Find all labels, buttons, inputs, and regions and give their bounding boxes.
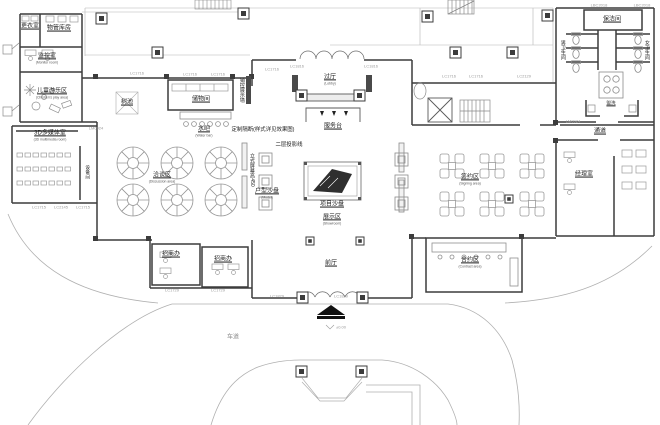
hall-column xyxy=(306,237,314,245)
trellis-icon xyxy=(195,0,231,9)
label-signing-area: 签约区(Signing area) xyxy=(458,174,482,185)
room-name-en: (Children's play area) xyxy=(36,95,68,99)
hall-column xyxy=(354,90,365,101)
project-sand-table xyxy=(304,162,361,200)
floor-plan-linework xyxy=(0,0,660,425)
label-front-hall: 前厅 xyxy=(325,261,337,268)
toilet-fixtures xyxy=(572,33,643,73)
room-name: 通道 xyxy=(594,129,606,136)
room-name: 车道 xyxy=(227,335,239,342)
entrance-column xyxy=(357,292,368,303)
manager-desk xyxy=(564,184,575,195)
label-changing-room: 更衣室 xyxy=(21,24,39,31)
window-tag: LC1829 xyxy=(334,294,348,299)
window-tag: LC2145 xyxy=(54,205,68,210)
window-tag: LBC2018 xyxy=(634,3,651,8)
label-custom-partition: 定制隔断(样式详见效果图) xyxy=(232,127,295,133)
label-invest-office-2: 招商办 xyxy=(214,257,232,264)
room-name-en: (3D multimedia room) xyxy=(34,137,67,141)
discussion-tables xyxy=(117,147,237,216)
room-name: 洽谈区 xyxy=(147,172,177,179)
stair-top-icon xyxy=(448,0,474,14)
label-discussion-area: 洽谈区(Discussion area) xyxy=(147,172,177,183)
annotation-text: 二层投影线 xyxy=(276,142,303,148)
room-name: 监控室 xyxy=(35,53,60,60)
label-projection-line: 二层投影线 xyxy=(276,142,303,148)
label-media-room: 3D多媒体室(3D multimedia room) xyxy=(32,130,69,141)
annotation-text: 立式屏幕高450 xyxy=(248,153,254,186)
room-name: 儿童游乐区 xyxy=(34,88,70,95)
window-tag: LC1716 xyxy=(469,74,483,79)
room-name-en: (Signing area) xyxy=(459,181,480,185)
label-manager-room: 经理室 xyxy=(575,172,593,179)
media-room-seats xyxy=(17,153,71,185)
terrace-lines xyxy=(82,8,553,82)
room-name: 男卫生间 xyxy=(559,40,565,60)
room-name-en: (Discussion area) xyxy=(149,179,176,183)
office-desk xyxy=(160,268,171,279)
hall-column xyxy=(356,237,364,245)
window-tag: LM0924 xyxy=(566,119,580,124)
label-project-model: 项目沙盘 xyxy=(320,202,344,209)
label-passage: 通道 xyxy=(594,129,606,136)
sales-display-wall xyxy=(246,76,251,104)
label-mens-toilet: 男卫生间 xyxy=(559,40,565,60)
walls xyxy=(12,8,654,298)
entrance-doors-top xyxy=(300,51,364,59)
room-name: 更衣室 xyxy=(21,24,39,31)
wing-column xyxy=(505,195,513,203)
annotation-text: 定制隔断(样式详见效果图) xyxy=(232,127,295,133)
room-name-en: (Contract area) xyxy=(459,264,482,268)
window-tag: LC1716 xyxy=(130,71,144,76)
room-name: 服务台 xyxy=(324,124,342,131)
driveway-curves xyxy=(8,214,652,425)
window-tag: LC1816 xyxy=(290,64,304,69)
label-washing: 盥洗 xyxy=(606,100,615,105)
entrance-column xyxy=(297,292,308,303)
label-display-area: 展示区(Showroom) xyxy=(322,214,343,225)
label-storage-room: 储物间 xyxy=(192,97,210,104)
window-tag: LM0924 xyxy=(89,126,103,131)
label-womens-toilet: 女卫生间 xyxy=(643,40,649,60)
room-name: 户型沙盘 xyxy=(255,188,279,195)
annotation-text: 销控展示墙 xyxy=(238,78,244,103)
entrance-doors-bottom xyxy=(300,292,360,297)
porch-canopy xyxy=(302,378,362,401)
window-tag: LC1816 xyxy=(364,64,378,69)
room-name: 3D多媒体室 xyxy=(32,130,69,137)
office-desk xyxy=(212,264,223,275)
room-name-en: (Monitor room) xyxy=(36,60,58,64)
label-monitor-room: 监控室(Monitor room) xyxy=(35,53,60,64)
entrance-arrow-icon xyxy=(317,305,345,319)
room-name-en: (Showroom) xyxy=(323,221,342,225)
room-name: 招商办 xyxy=(162,252,180,259)
level-mark-icon xyxy=(326,325,334,329)
feature-wall xyxy=(366,75,372,92)
elevator-icon xyxy=(428,98,452,122)
terrace-columns xyxy=(96,8,553,58)
restroom-entry-mats xyxy=(588,105,636,112)
signing-clusters xyxy=(440,154,544,216)
room-name: 展示区 xyxy=(322,214,343,221)
window-tag: LC1829 xyxy=(270,294,284,299)
room-name: 储物间 xyxy=(192,97,210,104)
office-desk xyxy=(228,264,239,275)
room-name: 保洁间 xyxy=(603,17,621,24)
manager-desk xyxy=(564,152,575,163)
label-sales-wall: 销控展示墙 xyxy=(238,78,244,103)
room-name: 招商办 xyxy=(214,257,232,264)
window-tag: LC1716 xyxy=(183,72,197,77)
room-name: 水吧 xyxy=(194,126,213,133)
room-name: 树池 xyxy=(121,100,133,107)
label-service-desk: 服务台 xyxy=(324,124,342,131)
annex-furniture xyxy=(22,16,78,22)
room-name: 盥洗 xyxy=(606,100,615,105)
room-name: 过厅 xyxy=(324,74,337,81)
room-name-en: (Model) xyxy=(256,195,278,199)
label-contract-area: 合约区(Contract area) xyxy=(457,257,483,268)
label-cleaning-room: 保洁间 xyxy=(603,17,621,24)
window-tag: LC1716 xyxy=(442,74,456,79)
stairs-icon xyxy=(460,100,490,122)
hall-column xyxy=(296,90,307,101)
label-kids-area: 儿童游乐区(Children's play area) xyxy=(34,88,70,99)
wash-basin-counter xyxy=(599,72,623,98)
manager-cabinets xyxy=(622,150,646,189)
section-markers xyxy=(3,43,19,116)
label-invest-office-1: 招商办 xyxy=(162,252,180,259)
room-name: 设备间 xyxy=(85,165,90,179)
window-tag: LC1729 xyxy=(211,288,225,293)
room-name: 合约区 xyxy=(457,257,483,264)
window-tag: LC1716 xyxy=(265,67,279,72)
room-name: 物管库房 xyxy=(47,26,71,33)
porch-column xyxy=(356,366,367,377)
room-name-en: (Water bar) xyxy=(195,133,212,137)
window-tag: LC1715 xyxy=(32,205,46,210)
label-property-storage: 物管库房 xyxy=(47,26,71,33)
window-tag: LC1716 xyxy=(211,72,225,77)
water-bar-counter xyxy=(180,112,231,126)
floor-plan-drawing: 更衣室 物管库房 监控室(Monitor room) 儿童游乐区(Childre… xyxy=(0,0,660,425)
window-tag: LC1729 xyxy=(165,288,179,293)
room-name-en: (Lobby) xyxy=(324,81,336,85)
label-equipment-room: 设备间 xyxy=(85,165,90,179)
window-tag: LC1715 xyxy=(76,205,90,210)
storage-shelves xyxy=(172,84,228,91)
label-vertical-screen: 立式屏幕高450 xyxy=(248,153,254,186)
label-lobby: 过厅(Lobby) xyxy=(324,74,337,85)
label-unit-model: 户型沙盘(Model) xyxy=(255,188,279,199)
room-name: 签约区 xyxy=(458,174,482,181)
label-water-bar: 水吧(Water bar) xyxy=(194,126,213,137)
room-name: 经理室 xyxy=(575,172,593,179)
label-driveway: 车道 xyxy=(227,335,239,342)
room-name: 项目沙盘 xyxy=(320,202,344,209)
window-tag: LBC2018 xyxy=(591,3,608,8)
room-name: 女卫生间 xyxy=(643,40,649,60)
room-name: 前厅 xyxy=(325,261,337,268)
label-level-mark: ±0.00 xyxy=(336,325,346,330)
label-tree-pool: 树池 xyxy=(121,100,133,107)
window-tag: LC2129 xyxy=(517,74,531,79)
feature-column-icon xyxy=(414,83,426,99)
feature-wall xyxy=(292,75,298,92)
porch-column xyxy=(296,366,307,377)
